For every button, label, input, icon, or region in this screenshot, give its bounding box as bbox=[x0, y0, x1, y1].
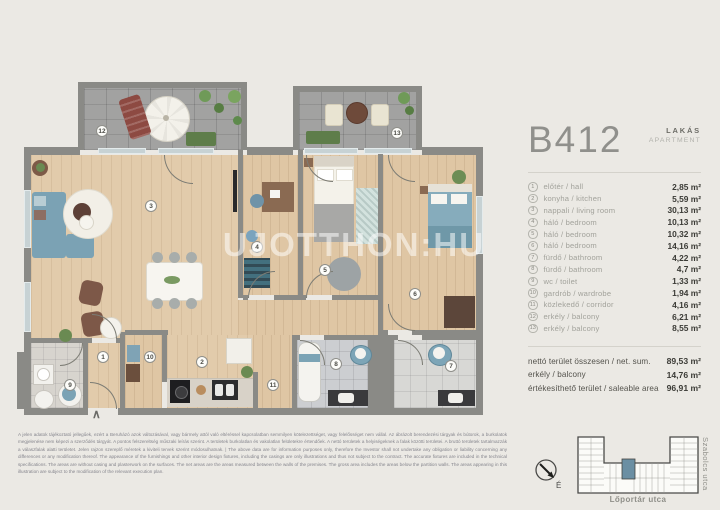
room-row-7: 7fürdő / bathroom4,22 m² bbox=[528, 252, 701, 264]
room-area: 6,21 m² bbox=[672, 312, 701, 322]
room-row-2: 2konyha / kitchen5,59 m² bbox=[528, 193, 701, 205]
room-row-4: 4háló / bedroom10,13 m² bbox=[528, 216, 701, 228]
room-row-9: 9wc / toilet1,33 m² bbox=[528, 275, 701, 287]
unit-type: LAKÁS APARTMENT bbox=[649, 126, 701, 144]
room-number-badge: 1 bbox=[528, 182, 538, 192]
compass-icon: É bbox=[532, 456, 568, 492]
room-number-badge: 7 bbox=[528, 253, 538, 263]
room-marker-3: 3 bbox=[145, 200, 157, 212]
room-area: 4,22 m² bbox=[672, 253, 701, 263]
room-number-badge: 10 bbox=[528, 288, 538, 298]
room-label: konyha / kitchen bbox=[544, 194, 602, 203]
total-label: értékesíthető terület / saleable area bbox=[528, 384, 659, 393]
room-label: háló / bedroom bbox=[544, 241, 597, 250]
room-row-13: 13erkély / balcony8,55 m² bbox=[528, 323, 701, 335]
totals-list: nettó terület összesen / net. sum.89,53 … bbox=[528, 354, 701, 395]
total-label: erkély / balcony bbox=[528, 370, 586, 379]
brochure-page: 12345678910111213 UJOTTHON:HU ∧ B412 LAK… bbox=[0, 0, 720, 510]
room-area: 4,7 m² bbox=[677, 264, 701, 274]
divider bbox=[528, 346, 701, 347]
room-number-badge: 4 bbox=[528, 218, 538, 228]
room-label: gardrób / wardrobe bbox=[544, 289, 612, 298]
total-row: nettó terület összesen / net. sum.89,53 … bbox=[528, 354, 701, 368]
room-label: fürdő / bathroom bbox=[544, 253, 603, 262]
divider bbox=[528, 172, 701, 173]
legal-disclaimer: A jelen adatok tájékoztató jellegűek, ez… bbox=[18, 431, 507, 476]
room-area: 5,59 m² bbox=[672, 194, 701, 204]
room-number-badge: 9 bbox=[528, 277, 538, 287]
street-label-szabolcs: Szabolcs utca bbox=[701, 437, 710, 501]
entry-arrow: ∧ bbox=[92, 407, 101, 421]
room-label: közlekedő / corridor bbox=[544, 300, 614, 309]
room-number-badge: 2 bbox=[528, 194, 538, 204]
watermark: UJOTTHON:HU bbox=[196, 226, 512, 264]
room-row-5: 5háló / bedroom10,32 m² bbox=[528, 228, 701, 240]
room-marker-9: 9 bbox=[64, 379, 76, 391]
total-area: 14,76 m² bbox=[667, 370, 701, 380]
room-area: 10,32 m² bbox=[667, 229, 701, 239]
room-label: háló / bedroom bbox=[544, 230, 597, 239]
room-row-3: 3nappali / living room30,13 m² bbox=[528, 205, 701, 217]
room-marker-12: 12 bbox=[96, 125, 108, 137]
room-marker-8: 8 bbox=[330, 358, 342, 370]
room-area: 8,55 m² bbox=[672, 323, 701, 333]
room-area: 1,94 m² bbox=[672, 288, 701, 298]
room-marker-2: 2 bbox=[196, 356, 208, 368]
room-area: 1,33 m² bbox=[672, 276, 701, 286]
room-number-badge: 6 bbox=[528, 241, 538, 251]
room-area: 10,13 m² bbox=[667, 217, 701, 227]
total-label: nettó terület összesen / net. sum. bbox=[528, 357, 651, 366]
room-marker-5: 5 bbox=[319, 264, 331, 276]
room-row-6: 6háló / bedroom14,16 m² bbox=[528, 240, 701, 252]
room-row-12: 12erkély / balcony6,21 m² bbox=[528, 311, 701, 323]
room-marker-6: 6 bbox=[409, 288, 421, 300]
room-area: 4,16 m² bbox=[672, 300, 701, 310]
room-row-10: 10gardrób / wardrobe1,94 m² bbox=[528, 287, 701, 299]
room-marker-11: 11 bbox=[267, 379, 279, 391]
room-area: 2,85 m² bbox=[672, 182, 701, 192]
building-outline bbox=[576, 436, 700, 494]
room-list: 1előtér / hall2,85 m²2konyha / kitchen5,… bbox=[528, 181, 701, 334]
total-area: 96,91 m² bbox=[667, 383, 701, 393]
room-row-11: 11közlekedő / corridor4,16 m² bbox=[528, 299, 701, 311]
total-row: erkély / balcony14,76 m² bbox=[528, 368, 701, 382]
room-number-badge: 11 bbox=[528, 300, 538, 310]
room-row-8: 8fürdő / bathroom4,7 m² bbox=[528, 264, 701, 276]
room-label: nappali / living room bbox=[544, 206, 616, 215]
room-marker-7: 7 bbox=[445, 360, 457, 372]
street-label-loportar: Lőportár utca bbox=[576, 495, 700, 504]
room-number-badge: 8 bbox=[528, 265, 538, 275]
room-number-badge: 13 bbox=[528, 324, 538, 334]
total-area: 89,53 m² bbox=[667, 356, 701, 366]
room-row-1: 1előtér / hall2,85 m² bbox=[528, 181, 701, 193]
room-number-badge: 3 bbox=[528, 206, 538, 216]
room-label: wc / toilet bbox=[544, 277, 578, 286]
room-label: erkély / balcony bbox=[544, 312, 600, 321]
room-area: 30,13 m² bbox=[667, 205, 701, 215]
room-label: háló / bedroom bbox=[544, 218, 597, 227]
unit-type-hu: LAKÁS bbox=[649, 126, 701, 135]
room-marker-1: 1 bbox=[97, 351, 109, 363]
room-number-badge: 12 bbox=[528, 312, 538, 322]
room-label: fürdő / bathroom bbox=[544, 265, 603, 274]
highlighted-unit bbox=[622, 459, 635, 479]
room-marker-10: 10 bbox=[144, 351, 156, 363]
unit-type-en: APARTMENT bbox=[649, 137, 701, 144]
svg-text:É: É bbox=[556, 481, 561, 490]
room-label: előtér / hall bbox=[544, 182, 584, 191]
room-number-badge: 5 bbox=[528, 229, 538, 239]
unit-data-panel: B412 LAKÁS APARTMENT 1előtér / hall2,85 … bbox=[528, 120, 701, 395]
room-label: erkély / balcony bbox=[544, 324, 600, 333]
total-row: értékesíthető terület / saleable area96,… bbox=[528, 381, 701, 395]
room-marker-13: 13 bbox=[391, 127, 403, 139]
room-area: 14,16 m² bbox=[667, 241, 701, 251]
